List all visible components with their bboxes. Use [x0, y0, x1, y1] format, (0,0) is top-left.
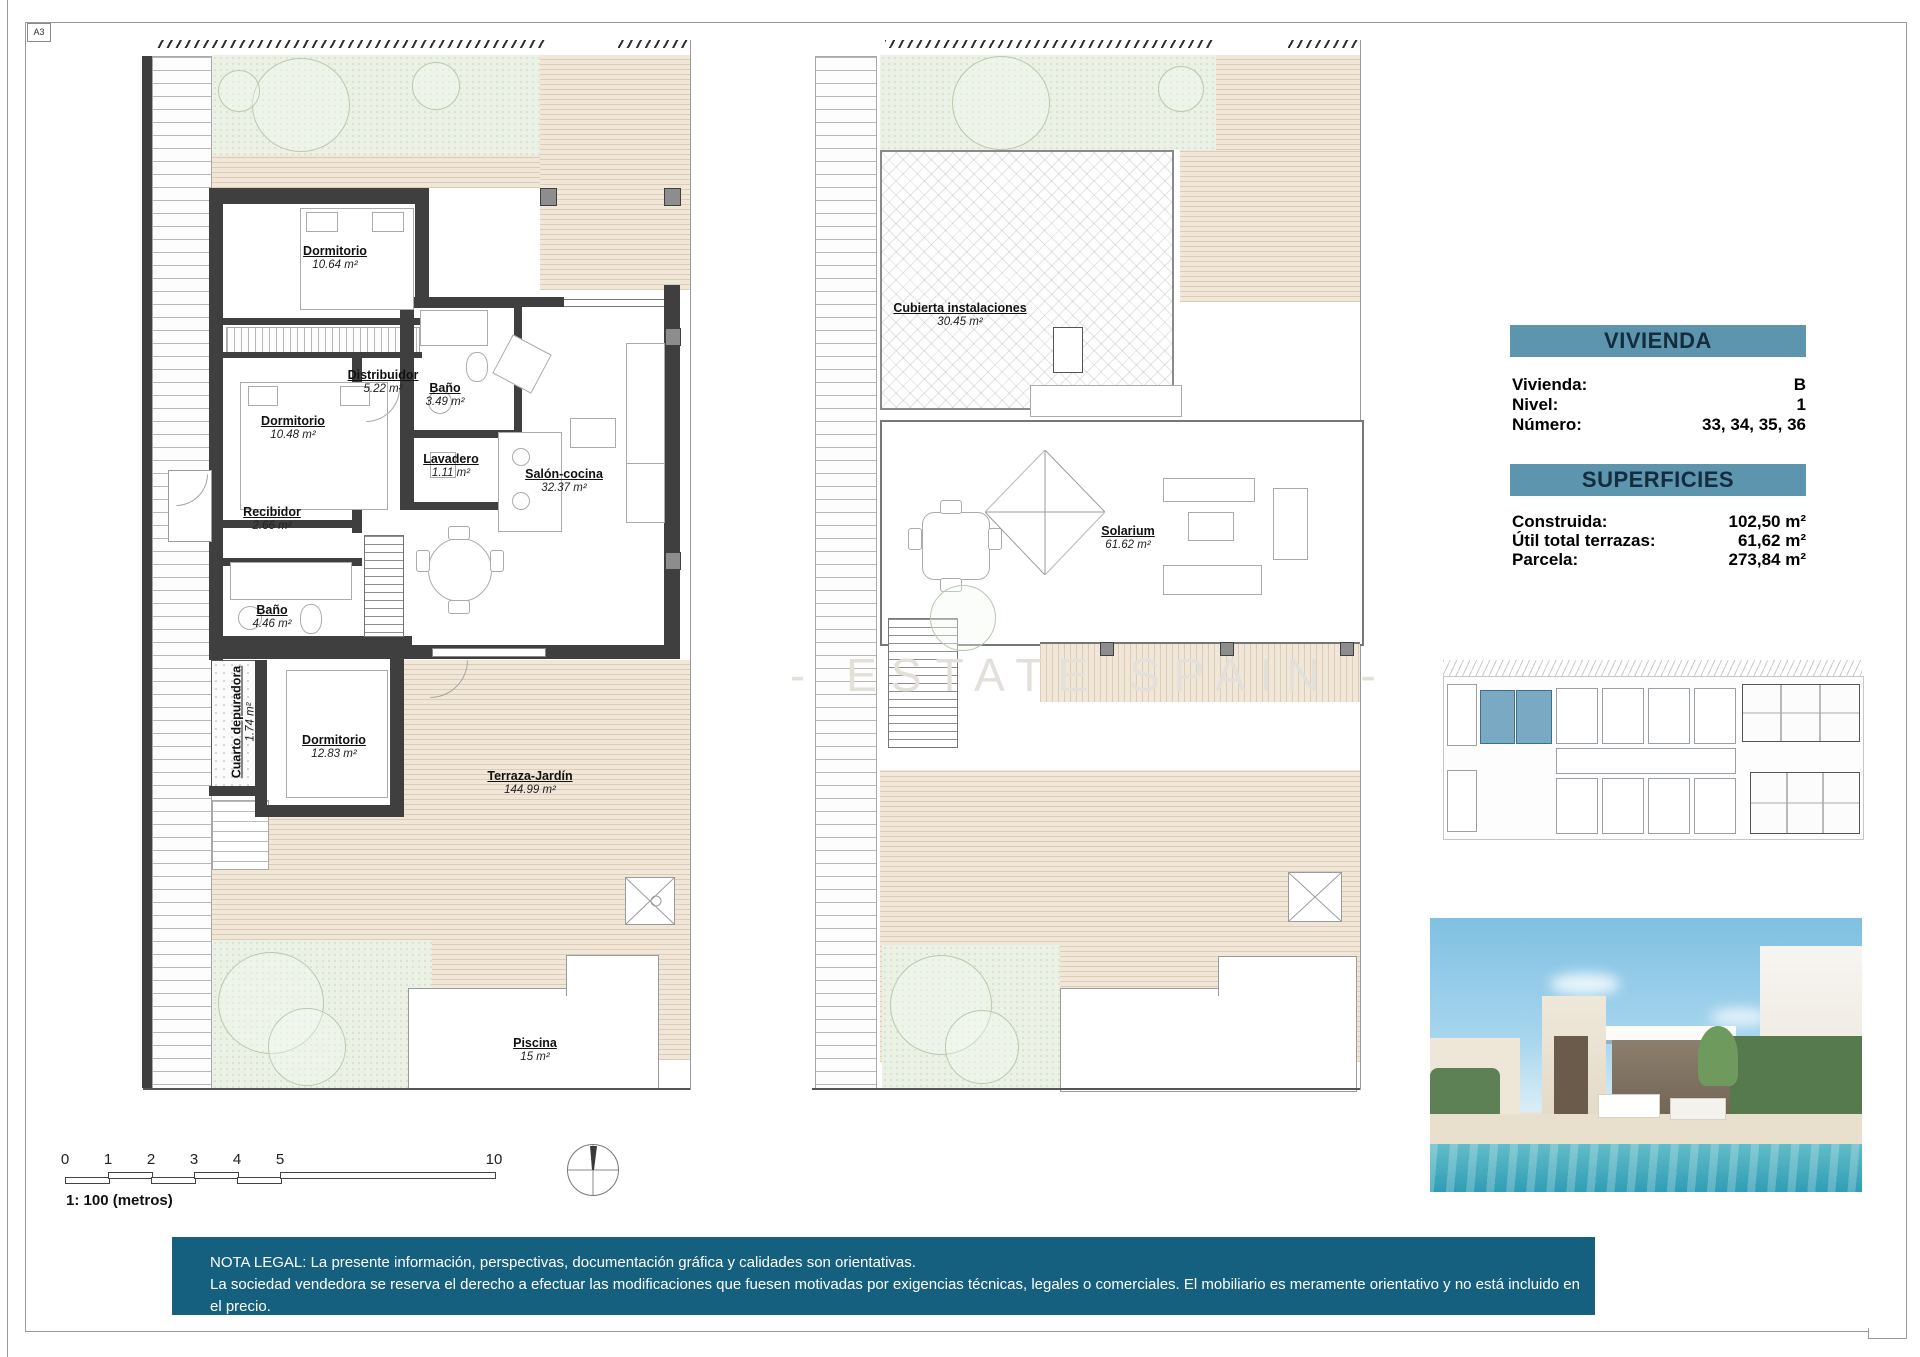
scale-label: 1: 100 (metros) [66, 1192, 173, 1209]
site-unit [1602, 688, 1644, 744]
plot-bottom-line [143, 1088, 690, 1090]
site-apartment-block [1750, 772, 1860, 834]
tree [952, 56, 1050, 150]
render-photo [1430, 918, 1862, 1192]
scale-segment [280, 1172, 496, 1179]
cubierta-instalaciones-room [880, 150, 1174, 410]
coffee-table [570, 418, 616, 448]
scale-segment [151, 1177, 196, 1184]
room-area: 1.74 m² [245, 666, 257, 779]
room-name: Lavadero [423, 452, 479, 466]
room-label-bano-2: Baño 4.46 m² [253, 603, 292, 630]
table-row: Útil total terrazas: 61,62 m² [1512, 531, 1806, 550]
deck-top-right [540, 55, 690, 290]
wall [415, 188, 429, 300]
plot-bottom-line [812, 1088, 1360, 1090]
pillow [248, 386, 278, 406]
row-label: Útil total terrazas: [1512, 531, 1656, 550]
room-area: 3.49 m² [426, 396, 465, 408]
chair [940, 500, 962, 514]
row-value: 61,62 m² [1738, 531, 1806, 550]
glass-door [1554, 1036, 1588, 1124]
room-name: Piscina [513, 1036, 557, 1050]
scale-tick: 5 [276, 1151, 284, 1168]
room-name: Distribuidor [348, 368, 419, 382]
room-label-terraza-jardin: Terraza-Jardín 144.99 m² [487, 769, 572, 796]
sofa [1163, 565, 1262, 595]
site-unit [1447, 770, 1477, 832]
room-area: 5.22 m² [348, 383, 419, 395]
block-partitions [1751, 773, 1859, 833]
row-value: 102,50 m² [1729, 512, 1807, 531]
scale-tick: 0 [61, 1151, 69, 1168]
watermark: - ESTATE SPAIN - [790, 648, 1390, 702]
room-name: Cuarto depuradora [230, 666, 244, 779]
room-name: Dormitorio [261, 414, 325, 428]
room-area: 15 m² [513, 1051, 557, 1063]
window [564, 299, 664, 307]
room-area: 32.37 m² [525, 482, 603, 494]
wall [222, 352, 422, 358]
pillar [540, 188, 557, 206]
toilet [466, 352, 488, 382]
chair [448, 600, 470, 614]
legal-line-2: La sociedad vendedora se reserva el dere… [210, 1274, 1595, 1318]
tree [268, 1008, 346, 1086]
superficies-header: SUPERFICIES [1510, 464, 1806, 496]
wall [209, 188, 223, 660]
row-label: Parcela: [1512, 550, 1578, 569]
site-unit [1694, 688, 1736, 744]
tree [1158, 66, 1204, 112]
site-unit [1648, 778, 1690, 834]
table-row: Construida: 102,50 m² [1512, 512, 1806, 531]
pool-ripples [1430, 1144, 1862, 1192]
tree [218, 70, 260, 112]
room-label-salon-cocina: Salón-cocina 32.37 m² [525, 467, 603, 494]
room-label-recibidor: Recibidor 2.66 m² [243, 505, 301, 532]
cloud [1550, 973, 1620, 995]
room-area: 30.45 m² [893, 316, 1026, 328]
wall [414, 300, 520, 308]
sheet-format-badge: A3 [27, 23, 51, 42]
sliding-door [432, 648, 546, 657]
pillow [306, 212, 338, 232]
room-label-distribuidor: Distribuidor 5.22 m² [348, 368, 419, 395]
block-partitions [1743, 685, 1859, 741]
legal-note-bar: NOTA LEGAL: La presente información, per… [172, 1237, 1595, 1315]
plot-edge-line [690, 40, 691, 1090]
roof-hatch [1053, 327, 1083, 373]
room-name: Salón-cocina [525, 467, 603, 481]
chair [988, 528, 1002, 550]
hob [512, 492, 530, 510]
outdoor-table [922, 512, 990, 580]
site-plan-highlighted-unit [1516, 690, 1552, 744]
pillar [664, 188, 681, 206]
wall [400, 300, 414, 510]
tree [945, 1010, 1019, 1084]
site-common-garden [1556, 748, 1736, 774]
row-value: B [1794, 375, 1806, 394]
table-row: Parcela: 273,84 m² [1512, 550, 1806, 569]
pool-outline-step [1218, 956, 1357, 996]
pillow [372, 212, 404, 232]
tree [252, 58, 350, 152]
room-area: 10.64 m² [303, 259, 367, 271]
terrace-skylight-box [1288, 872, 1342, 922]
row-label: Número: [1512, 415, 1582, 434]
plan-sheet: A3 [0, 0, 1920, 1357]
terrace-skylight-box [625, 877, 675, 925]
row-label: Nivel: [1512, 395, 1558, 414]
room-label-bano-1: Baño 3.49 m² [426, 381, 465, 408]
pillar [665, 328, 681, 346]
site-plan-road-hatch [1443, 660, 1862, 676]
fence-zigzag [618, 40, 690, 48]
site-plan-highlighted-unit [1480, 690, 1515, 744]
compass-icon [567, 1144, 619, 1196]
deck-strip [212, 155, 542, 188]
sofa-chaise [626, 463, 665, 523]
pool-outline-step [566, 955, 659, 996]
pool-outline [1060, 988, 1357, 1092]
table-row: Número: 33, 34, 35, 36 [1512, 415, 1806, 434]
row-value: 1 [1797, 395, 1806, 414]
room-area: 2.66 m² [243, 520, 301, 532]
scale-tick: 3 [190, 1151, 198, 1168]
scale-tick: 1 [104, 1151, 112, 1168]
site-unit [1648, 688, 1690, 744]
armchair [1273, 488, 1308, 560]
table-row: Vivienda: B [1512, 375, 1806, 394]
room-label-cuarto-depuradora: Cuarto depuradora 1.74 m² [230, 666, 257, 779]
room-name: Baño [253, 603, 292, 617]
scale-segment [65, 1177, 110, 1184]
room-area: 10.48 m² [261, 429, 325, 441]
room-label-cubierta-instalaciones: Cubierta instalaciones 30.45 m² [893, 301, 1026, 328]
fence-zigzag [885, 40, 1215, 48]
wardrobe-band [226, 327, 420, 353]
room-name: Dormitorio [302, 733, 366, 747]
wall [222, 318, 422, 325]
chair [448, 526, 470, 540]
frame-corner-tab [1868, 1328, 1907, 1339]
shade-sail [985, 450, 1105, 575]
site-unit [1556, 688, 1598, 744]
shower [420, 310, 488, 346]
vivienda-header: VIVIENDA [1510, 325, 1806, 357]
legal-line-1: NOTA LEGAL: La presente información, per… [210, 1252, 1595, 1274]
tree [412, 62, 460, 110]
room-label-piscina: Piscina 15 m² [513, 1036, 557, 1063]
counter [1030, 385, 1182, 417]
site-unit [1447, 684, 1477, 746]
compass-needle [568, 1145, 618, 1195]
room-name: Dormitorio [303, 244, 367, 258]
dining-table [428, 538, 492, 602]
room-name: Recibidor [243, 505, 301, 519]
room-name: Terraza-Jardín [487, 769, 572, 783]
coffee-table [1188, 512, 1234, 541]
row-value: 273,84 m² [1729, 550, 1807, 569]
banana-plant [1698, 1026, 1738, 1086]
row-value: 33, 34, 35, 36 [1702, 415, 1806, 434]
room-label-solarium: Solarium 61.62 m² [1101, 524, 1155, 551]
chair [416, 550, 430, 572]
scale-segment [194, 1172, 239, 1179]
sheet-format-label: A3 [33, 27, 44, 37]
scale-segment [108, 1172, 153, 1179]
fence-zigzag [1288, 40, 1360, 48]
louver-strip [152, 56, 212, 1090]
sofa [626, 343, 665, 467]
skylight-diagonals [626, 878, 674, 924]
site-unit [1556, 778, 1598, 834]
chair [908, 528, 922, 550]
wall [209, 786, 267, 796]
lounge-chairs [1598, 1094, 1660, 1118]
table-row: Nivel: 1 [1512, 395, 1806, 414]
room-label-dormitorio-3: Dormitorio 12.83 m² [302, 733, 366, 760]
roof-deck [1180, 150, 1360, 302]
room-name: Solarium [1101, 524, 1155, 538]
stair-treads [364, 535, 404, 637]
site-apartment-block [1742, 684, 1860, 742]
room-label-lavadero: Lavadero 1.11 m² [423, 452, 479, 479]
wall [255, 805, 404, 817]
wall [664, 297, 680, 655]
row-label: Construida: [1512, 512, 1607, 531]
sofa [1163, 478, 1255, 502]
room-area: 12.83 m² [302, 748, 366, 760]
site-unit [1694, 778, 1736, 834]
sink [512, 448, 530, 466]
louver-strip [815, 56, 877, 1090]
room-label-dormitorio-1: Dormitorio 10.64 m² [303, 244, 367, 271]
pillar [665, 552, 681, 570]
toilet [300, 604, 322, 634]
room-area: 61.62 m² [1101, 539, 1155, 551]
scale-tick: 4 [233, 1151, 241, 1168]
boundary-wall [142, 56, 152, 1088]
bathtub [230, 562, 352, 600]
room-label-dormitorio-2: Dormitorio 10.48 m² [261, 414, 325, 441]
page-edge-line [7, 0, 8, 1357]
skylight-diagonals [1289, 873, 1341, 921]
lounge-chairs [1670, 1098, 1726, 1120]
row-label: Vivienda: [1512, 375, 1587, 394]
scale-tick: 10 [486, 1151, 503, 1168]
room-name: Baño [426, 381, 465, 395]
room-area: 1.11 m² [423, 467, 479, 479]
site-unit [1602, 778, 1644, 834]
planter [930, 585, 996, 651]
scale-tick: 2 [147, 1151, 155, 1168]
room-area: 144.99 m² [487, 784, 572, 796]
fence-zigzag [155, 40, 547, 48]
scale-segment [237, 1177, 282, 1184]
wall [209, 188, 429, 204]
room-area: 4.46 m² [253, 618, 292, 630]
chair [490, 550, 504, 572]
room-name: Cubierta instalaciones [893, 301, 1026, 315]
wall [390, 659, 404, 817]
